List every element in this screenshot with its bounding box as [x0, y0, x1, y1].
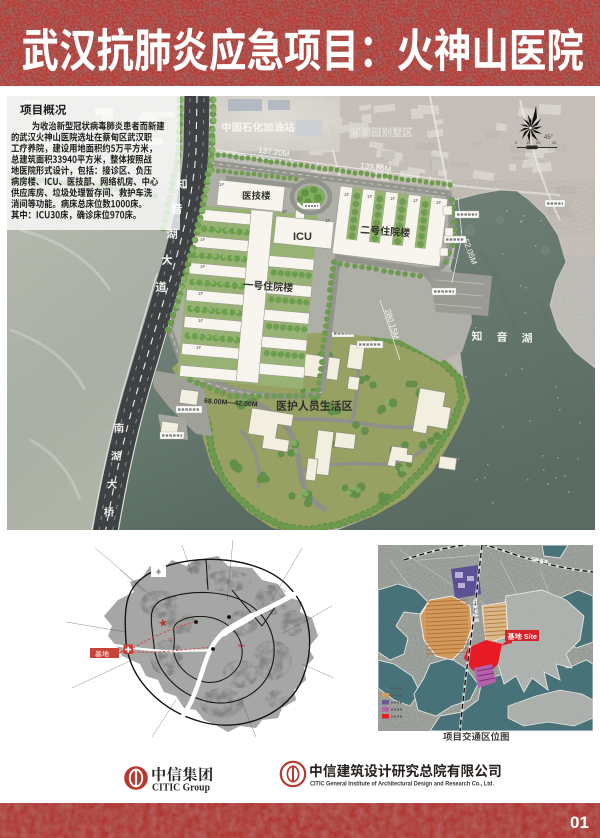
svg-text:1F: 1F — [413, 198, 419, 203]
svg-text:1F: 1F — [198, 318, 204, 323]
svg-text:1F: 1F — [390, 196, 396, 201]
svg-text:ICU: ICU — [293, 231, 312, 243]
svg-text:1F: 1F — [196, 345, 202, 350]
svg-text:10: 10 — [526, 140, 531, 145]
svg-text:1F: 1F — [325, 218, 331, 223]
svg-text:1F: 1F — [282, 209, 288, 214]
svg-text:1F: 1F — [436, 200, 442, 205]
svg-text:T2: T2 — [168, 637, 173, 642]
svg-text:1F: 1F — [200, 264, 206, 269]
svg-text:Site: Site — [524, 634, 537, 641]
svg-text:CITIC Group: CITIC Group — [152, 783, 210, 794]
svg-text:CITIC General Institute of Arc: CITIC General Institute of Architectural… — [310, 781, 494, 788]
svg-text:WH: WH — [238, 643, 245, 648]
svg-text:1F: 1F — [200, 237, 206, 242]
svg-text:1F: 1F — [219, 182, 225, 187]
svg-text:1F: 1F — [198, 291, 204, 296]
svg-text:1F: 1F — [367, 194, 373, 199]
svg-text:20: 20 — [536, 140, 541, 145]
svg-text:01: 01 — [570, 813, 589, 832]
svg-text:40: 40 — [552, 140, 557, 145]
svg-text:1F: 1F — [344, 192, 350, 197]
